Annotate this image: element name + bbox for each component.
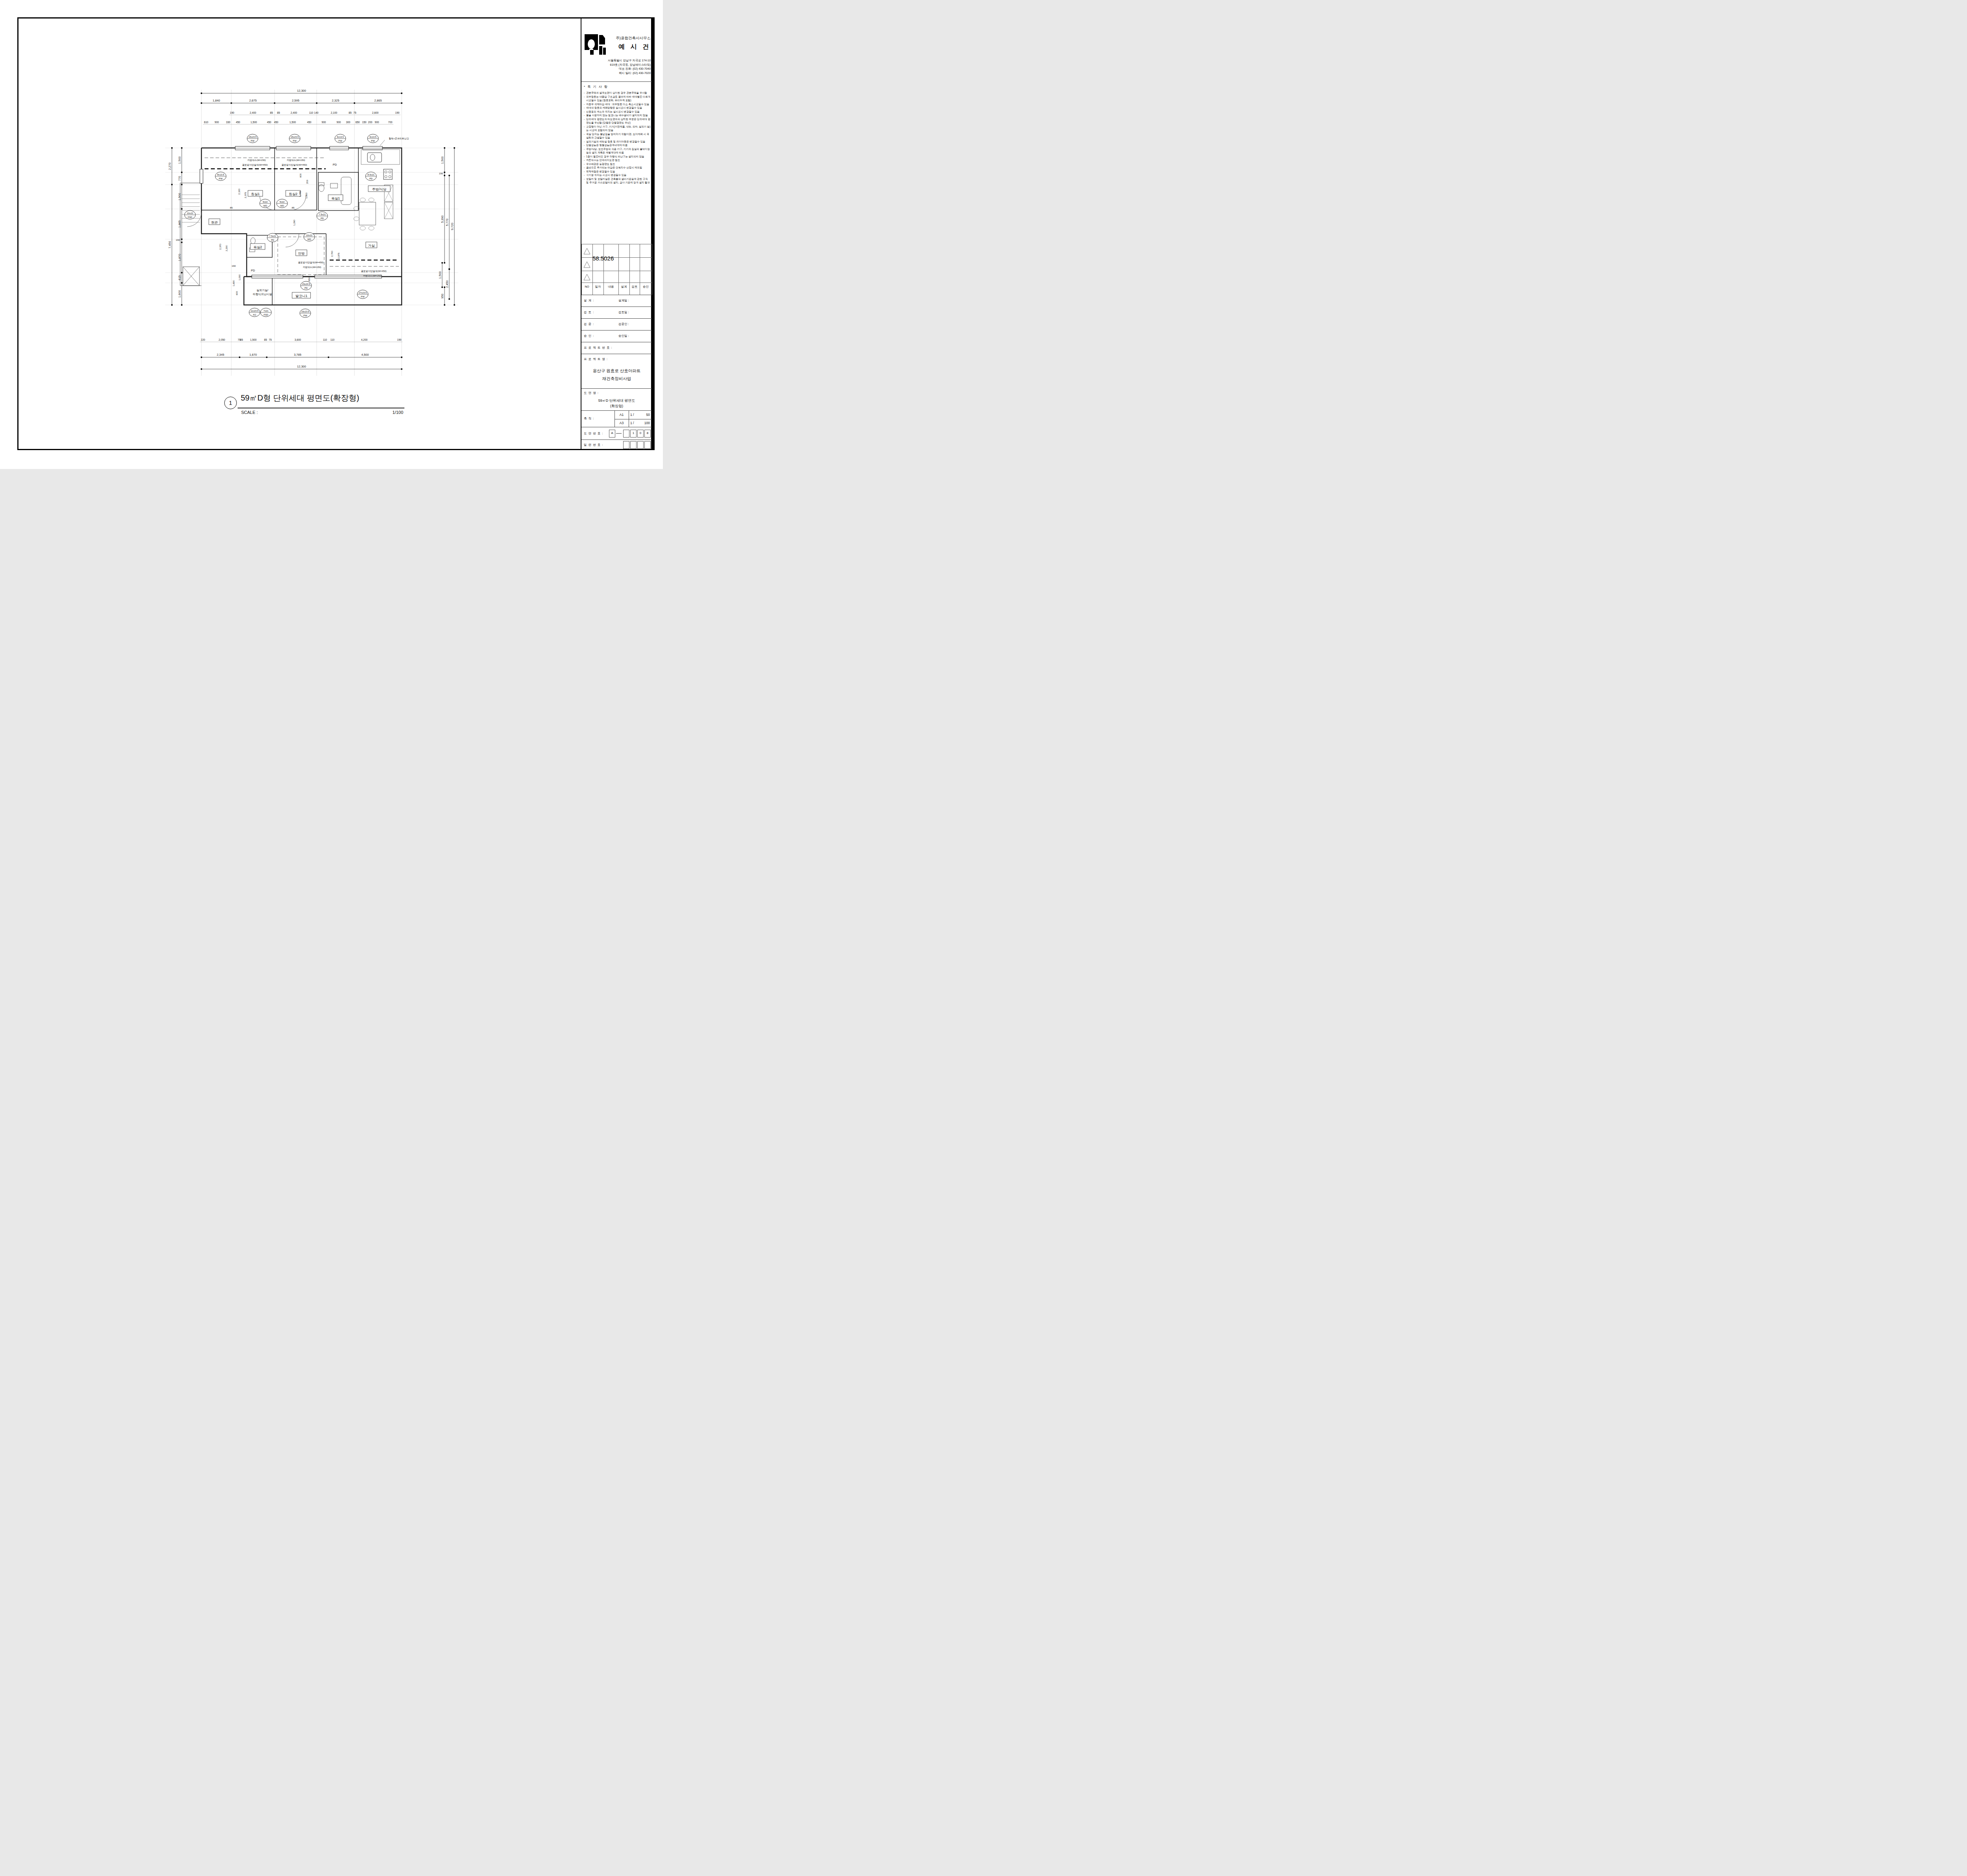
dining-chair — [360, 226, 365, 230]
drawing-name-label: 도 면 명 : — [584, 391, 599, 395]
toilet-icon — [319, 183, 324, 186]
dining-chair — [369, 226, 374, 230]
revision-table: 58.5026NO일자내용설계검토승인 — [581, 244, 652, 295]
sign-right-label: 검증인 : — [618, 322, 629, 326]
dim-tick — [201, 102, 202, 104]
dim-label: 110 — [330, 338, 335, 341]
dim-tick — [181, 172, 183, 173]
dim-label: 85 — [264, 338, 267, 341]
drawing-name-row: 도 면 명 : 59㎡D 단위세대 평면도 (확장형) — [581, 388, 652, 411]
window-tag-code: PD — [369, 177, 373, 180]
window-tag-code: PW — [219, 177, 223, 180]
annotation-text: 결로방지단열재(W=450) — [298, 261, 323, 264]
sign-row: 검 토 : 검토일 : — [581, 307, 652, 319]
annotation-text: 커텐박스(W=150) — [286, 159, 305, 161]
dim-label: 5,770 — [445, 219, 449, 226]
dim-tick — [181, 208, 183, 210]
dim-tick — [444, 262, 445, 264]
dim-tick — [401, 92, 402, 94]
dim-label: 615 — [178, 275, 181, 281]
dim-tick — [401, 368, 402, 370]
note-item: 커튼박스는 인테리어도면 참조 — [584, 158, 651, 162]
dim-tick — [181, 272, 183, 273]
dim-tick — [454, 304, 455, 306]
project-name-label: 프 로 젝 트 명 : — [584, 357, 608, 361]
revision-header: NO — [581, 285, 592, 288]
dim-label: 650 — [355, 121, 360, 124]
dim-label: 610 — [204, 121, 208, 124]
title-block: 주)종합건축사사무소 예 시 건 서울특별시 강남구 자곡로 174-10619… — [581, 18, 651, 449]
revision-triangle — [583, 274, 590, 281]
dim-label: 950 — [441, 294, 444, 299]
window-tag-code: PW — [338, 140, 342, 142]
dim-tick — [444, 175, 445, 176]
dim-label: 190 — [397, 338, 401, 341]
dim-label-interior: 85 — [292, 206, 295, 209]
dining-chair — [360, 198, 365, 202]
room-label: 욕실1 — [331, 196, 340, 200]
window-tag-size: 15x23.5 — [301, 310, 310, 313]
dim-label: 1,500 — [438, 271, 442, 279]
special-notes-title: * 특 기 사 항 — [584, 85, 651, 89]
dim-label: 7,450 — [168, 241, 172, 249]
sign-right-label: 승인일 : — [618, 334, 629, 338]
sign-right-label: 설계일 : — [618, 299, 629, 303]
dim-tick — [266, 356, 268, 358]
dim-label: 2,600 — [372, 111, 379, 114]
address-line: 619호 (자곡동, 강남에이스타워) — [585, 63, 651, 67]
window-tag-size: 15x23.5 — [291, 136, 299, 138]
note-item: 단열성능은 형별성능관계내역에 따름 — [584, 143, 651, 147]
window-tag-code: PW — [371, 140, 375, 142]
dim-label-interior: 2,975 — [337, 253, 340, 259]
dim-label: 900 — [214, 121, 219, 124]
dim-tick — [448, 175, 450, 176]
dim-label: 200 — [368, 121, 372, 124]
dim-label-interior: 1,500 — [305, 192, 308, 199]
sign-left-label: 검 토 : — [584, 310, 594, 314]
room-label: 실외기실/ — [256, 289, 268, 292]
stove-icon — [384, 169, 392, 179]
serial-no-digit-box — [637, 441, 644, 449]
window — [200, 169, 203, 183]
dim-label: 85 — [270, 111, 273, 114]
window-tag-size: 7x21 — [264, 310, 269, 312]
dim-tick — [171, 184, 173, 185]
scale-sheet-a1: A1 — [615, 413, 628, 417]
window-tag-code: FSD — [264, 314, 268, 316]
revision-header: 승인 — [640, 285, 652, 289]
drawing-number-bubble: 1 — [224, 397, 237, 409]
kitchen-sink-icon — [367, 153, 382, 162]
dim-label: 12,300 — [297, 365, 306, 368]
note-item: 국기봉 위치는 시공시 변경될수 있음 — [584, 173, 651, 177]
window-tag-size: 15x23.5 — [249, 136, 257, 138]
scale-row-label: 축 척 : — [584, 417, 594, 421]
dim-label-interior: 1,260 — [293, 220, 295, 226]
dim-label: 3,785 — [294, 353, 301, 356]
serial-no-digit-box — [630, 441, 637, 449]
dim-tick — [328, 356, 329, 358]
dim-tick — [444, 286, 445, 288]
dim-tick — [171, 147, 173, 149]
dim-label-interior: 200 — [306, 179, 308, 184]
dining-table — [359, 202, 376, 225]
dim-label: 1,500 — [251, 121, 257, 124]
stove-burner — [389, 175, 391, 178]
window-tag-size: 8.5x21 — [367, 174, 374, 176]
annotation-text: 커텐박스(W=150) — [363, 275, 381, 277]
dim-label: 110 — [323, 338, 327, 341]
dim-label: 5,390 — [441, 216, 444, 223]
dim-label-interior: 1,785 — [299, 191, 301, 197]
room-label: 거실 — [368, 244, 375, 247]
dim-label-interior: 2,200 — [225, 245, 228, 251]
dim-label-interior: 600 — [235, 291, 238, 295]
window-tag-code: PW — [361, 295, 365, 298]
note-item: 욕실 단차는 물넘침을 방지하기 위함이면, 도어개폐 시 욕실화와 간설될수 … — [584, 132, 651, 140]
scale-label: SCALE : — [241, 410, 258, 415]
dim-label: 1,500 — [441, 157, 444, 164]
core-outline — [180, 183, 201, 286]
dim-label: 190 — [395, 111, 399, 114]
note-item: 주방/식당, 보조주방의 각종 가구, 기기와 침실의 붙박이장 등의 설치 계… — [584, 147, 651, 155]
project-name-line2: 재건축정비사업 — [581, 376, 652, 382]
sign-left-label: 설 계 : — [584, 299, 594, 303]
dim-label: 85 — [349, 111, 352, 114]
sign-row: 검 증 : 검증인 : — [581, 318, 652, 331]
dim-label: 4,200 — [361, 338, 368, 341]
dim-tick — [181, 242, 183, 243]
dim-tick — [181, 282, 183, 284]
dim-tick — [171, 304, 173, 306]
room-label: 침실2 — [289, 192, 297, 196]
dim-tick — [181, 147, 183, 149]
stove-burner — [385, 175, 387, 178]
company-name-small: 주)종합건축사사무소 — [607, 36, 651, 41]
dim-label: 1,865 — [178, 220, 181, 228]
address-line: 팩시 밀리: (02) 430-7020 — [585, 71, 651, 76]
dim-label-interior: 2,100 — [238, 188, 240, 195]
dim-label: 450 — [267, 121, 271, 124]
dim-label: 220 — [201, 338, 205, 341]
dim-label: 85 — [277, 111, 280, 114]
address-line: 대표 전화: (02) 430-7040 — [585, 67, 651, 71]
stove-burner — [385, 171, 387, 173]
room-label: 욕실2 — [253, 245, 262, 249]
drawing-no-dash — [616, 433, 622, 434]
note-item: 세대내 창호의 개폐방향은 실시공시 변경될수 있음 — [584, 106, 651, 110]
note-item: 1층이 필로티인 경우 하향식 피난구는 설치되지 않음 — [584, 155, 651, 159]
dim-tick — [181, 184, 183, 185]
window-tag-size: 10x22 — [306, 234, 312, 236]
address-line: 서울특별시 강남구 자곡로 174-10 — [585, 59, 651, 63]
drawing-no-label: 도 면 번 호 : — [584, 432, 603, 436]
window-tag-code: PW — [303, 314, 307, 317]
drawing-name-line2: (확장형) — [581, 404, 652, 409]
note-item: 물을 사용하지 않는 발코니는 배수설비가 설치되지 않음 — [584, 113, 651, 117]
pd-label: PD — [333, 163, 337, 166]
annotation-text: 커텐박스(W=150) — [303, 266, 321, 268]
serial-no-row: 일 련 번 호 : — [581, 439, 652, 449]
sign-left-label: 승 인 : — [584, 334, 594, 338]
window-tag-size: 9x13.5 — [369, 136, 376, 138]
dim-tick — [181, 304, 183, 306]
dim-label: 2,270 — [168, 162, 172, 170]
dim-label: 75 — [353, 111, 356, 114]
window-tag-code: AG — [253, 314, 256, 316]
annotation-text: 결로방지단열재(W=450) — [361, 270, 386, 272]
drawing-no-prefix-box: A — [609, 430, 615, 438]
note-item: 보일러 및 보일러실은 건축물의 설비기준등에 관한 규칙 및 주거용 가스보일… — [584, 177, 651, 185]
dim-label: 2,450 — [445, 281, 449, 288]
dim-label: 2,345 — [217, 353, 224, 356]
dim-label-interior: 190 — [232, 264, 236, 267]
scale-value: 1/100 — [354, 410, 403, 415]
drawing-no-digit-box: 1 — [630, 430, 637, 438]
revision-header: 검토 — [629, 285, 640, 289]
dim-label-interior: 85 — [230, 206, 233, 209]
dim-tick — [444, 147, 445, 149]
pd-label: PD — [251, 269, 255, 272]
room-label: 침실1 — [251, 192, 260, 196]
divider — [581, 81, 652, 82]
dim-label-interior: 1,000 — [238, 274, 241, 281]
dim-label: 190 — [230, 111, 234, 114]
drawing-no-digit-box: 0 — [637, 430, 644, 438]
project-no-row: 프 로 젝 트 번 호 : — [581, 342, 652, 354]
dim-label: 1,600 — [178, 290, 181, 298]
revision-header: 일자 — [592, 285, 603, 289]
dim-label-interior: 2,375 — [244, 192, 247, 198]
door-arc — [286, 234, 299, 247]
wall-outer — [201, 148, 402, 277]
dim-label: 2,400 — [250, 111, 256, 114]
dim-label-interior: 650 — [308, 277, 310, 281]
annotation-text: 철제+콘크리트난간 — [389, 137, 409, 140]
dim-label: 1,500 — [178, 193, 181, 201]
note-item: 견본주택과 설계도면이 상이한 경우 견본주택을 우서함 — [584, 91, 651, 95]
dim-label: 2,595 — [292, 99, 299, 102]
dim-label: 2,325 — [332, 99, 340, 102]
dim-label: 12,300 — [297, 89, 306, 92]
special-notes: * 특 기 사 항 견본주택과 설계도면이 상이한 경우 견본주택을 우서함외부… — [584, 85, 651, 185]
window-tag-code: PW — [251, 140, 255, 142]
dim-tick — [201, 356, 202, 358]
dim-label: 1,670 — [249, 353, 257, 356]
window-tag-code: WD — [263, 205, 267, 207]
kitchen-sink-icon — [370, 154, 375, 161]
company-logo — [585, 34, 606, 55]
dim-label: 330 — [226, 121, 230, 124]
dim-label-interior: 1,600 — [232, 280, 235, 286]
serial-no-digit-box — [623, 441, 629, 449]
dim-label: 2,100 — [331, 111, 338, 114]
company-address: 서울특별시 강남구 자곡로 174-10619호 (자곡동, 강남에이스타워)대… — [585, 59, 651, 75]
dim-tick — [354, 102, 355, 104]
drawing-title: 59㎡D형 단위세대 평면도(확장형) — [241, 393, 359, 403]
dim-label: 9,720 — [450, 223, 454, 230]
dim-tick — [316, 102, 317, 104]
dim-label: 2,675 — [249, 99, 257, 102]
window-tag-code: PD — [321, 217, 324, 220]
scale-sheet-a3: A3 — [615, 421, 628, 425]
dim-label: 75 — [269, 338, 272, 341]
sign-left-label: 검 증 : — [584, 322, 594, 326]
builtin-cabinet-x — [384, 202, 393, 219]
dim-label: 190 — [439, 172, 443, 175]
sink-icon — [330, 183, 338, 188]
drawing-sheet: 침실1침실2욕실1주방/식당현관욕실2안방거실발코니1실외기실/하향식피난시설P… — [0, 0, 663, 469]
dim-label: 85 — [240, 338, 243, 341]
dim-tick — [239, 356, 240, 358]
note-item: 우수배관은 동평면도 참조 — [584, 162, 651, 166]
annotation-leader — [380, 140, 385, 146]
stove-burner — [389, 171, 391, 173]
window-tag-size: 7.5x21 — [319, 213, 325, 216]
window-tag-code: WD — [307, 238, 311, 240]
scale-value-a1: 50 — [637, 413, 650, 417]
dim-label: 900 — [375, 121, 379, 124]
dim-label-interior: 2,370 — [219, 244, 221, 250]
dim-label: 1,500 — [290, 121, 296, 124]
room-label: 현관 — [211, 220, 218, 224]
note-item: 고정형이 아닌 가구, 기기(가전제품, 식탁, 의자, 실외기 등)는 시공에… — [584, 125, 651, 132]
sign-right-label: 검토일 : — [618, 310, 629, 314]
revision-number: 58.5026 — [592, 255, 614, 262]
dim-label: 110 — [309, 111, 314, 114]
dim-label: 450 — [274, 121, 278, 124]
dim-label: 1,500 — [178, 157, 181, 164]
window-tag-size: 7.5x21 — [269, 235, 276, 237]
revision-header: 설계 — [618, 285, 629, 289]
serial-no-label: 일 련 번 호 : — [584, 443, 603, 447]
dim-tick — [441, 286, 443, 288]
window-tag-code: PD — [304, 287, 308, 289]
company-name-large: 예 시 건 — [607, 43, 651, 51]
dim-label: 3,600 — [295, 338, 301, 341]
dim-label: 2,050 — [219, 338, 225, 341]
scale-value-a3: 100 — [637, 421, 650, 425]
window-tag-code: PD — [271, 239, 274, 241]
wall-bath1 — [318, 172, 358, 210]
window-tag-size: 10x22 — [187, 212, 193, 214]
room-label: 하향식피난시설 — [253, 293, 272, 296]
dim-label-interior: 600 — [299, 173, 302, 177]
dim-tick — [181, 238, 183, 240]
dim-tick — [401, 356, 402, 358]
revision-triangle — [583, 248, 590, 255]
dim-label: 700 — [388, 121, 392, 124]
dim-label: 190 — [176, 238, 180, 241]
room-label: 안방 — [298, 251, 305, 255]
revision-header: 내용 — [603, 285, 618, 289]
dim-label: 1,870 — [178, 254, 181, 261]
window-tag-code: WD — [280, 205, 284, 207]
dim-label: 1,500 — [250, 338, 257, 341]
window-tag-size: 11x23.5 — [251, 310, 258, 312]
sign-row: 승 인 : 승인일 : — [581, 330, 652, 342]
dim-tick — [448, 298, 450, 300]
note-item: 외부창호는 내풍압 구조검토 결과에 따라 세대별로 다르게 시공될수 있음 (… — [584, 95, 651, 102]
dim-label: 4,500 — [362, 353, 369, 356]
dim-tick — [454, 147, 455, 149]
room-label: 주방/식당 — [372, 187, 387, 191]
note-item: 단위세대 평면도와 타도면과의 상히한 부분은 단위세대 평면도를 우선함 (단… — [584, 117, 651, 125]
dining-chair — [369, 198, 374, 202]
dim-tick — [201, 92, 202, 94]
dim-label: 770 — [178, 176, 181, 181]
scale-row: 축 척 : A1 1 / 50 A3 1 / 100 — [581, 410, 652, 427]
dim-label: 300 — [346, 121, 350, 124]
dim-tick — [444, 172, 445, 173]
dim-tick — [274, 102, 275, 104]
drawing-no-digit-box — [623, 430, 629, 438]
dim-label: 2,400 — [291, 111, 297, 114]
dim-tick — [448, 268, 450, 270]
drawing-name-line1: 59㎡D 단위세대 평면도 — [581, 398, 652, 403]
dim-label: 450 — [307, 121, 311, 124]
annotation-text: 커텐박스(W=150) — [247, 159, 266, 161]
window-tag-code: PW — [293, 140, 297, 142]
dim-tick — [444, 304, 445, 306]
dim-label: 1,840 — [213, 99, 220, 102]
dim-label: 450 — [236, 121, 240, 124]
window-tag-code: FSD — [188, 216, 192, 218]
dim-label: 900 — [321, 121, 326, 124]
note-item: 선홈통의 개소와 위치는 실시공시 변경될수 있음 — [584, 110, 651, 114]
window-tag-size: 9x22 — [280, 201, 285, 203]
scale-ratio-a3: 1 / — [630, 421, 634, 425]
note-item: 실외기실과 세탁실 창호 및 레이아웃은 변경될수 있음 — [584, 140, 651, 144]
note-item: 저층부 석재마감 세대 : 외부창호 다소 축소시공될수 있음 — [584, 102, 651, 106]
scale-ratio-a1: 1 / — [630, 413, 634, 417]
wall-partition — [275, 148, 358, 210]
dim-label: 2,865 — [375, 99, 382, 102]
title-underline — [238, 408, 404, 408]
dim-tick — [401, 102, 402, 104]
annotation-text: 결로방지단열재(W=450) — [281, 164, 307, 166]
toilet-icon — [251, 238, 255, 244]
drawing-no-digit-box: 8 — [644, 430, 651, 438]
room-label: 발코니1 — [295, 294, 308, 298]
project-name-row: 프 로 젝 트 명 : 용산구 원효로 산호아파트 재건축정비사업 — [581, 354, 652, 389]
revision-triangle — [583, 261, 590, 268]
project-name-line1: 용산구 원효로 산호아파트 — [581, 368, 652, 374]
dim-tick — [231, 102, 232, 104]
window-tag-size: 27x23.5 — [359, 292, 367, 294]
drawing-no-row: 도 면 번 호 : A 108 — [581, 427, 652, 440]
dim-label: 150 — [362, 121, 366, 124]
dim-label: 900 — [336, 121, 341, 124]
special-notes-list: 견본주택과 설계도면이 상이한 경우 견본주택을 우서함외부창호는 내풍압 구조… — [584, 91, 651, 185]
note-item: 옵션으로 추가되는 마감은 안목치수 산정시 제외됨 — [584, 166, 651, 170]
window-tag-size: 9x22 — [263, 201, 268, 203]
dim-label: 140 — [314, 111, 318, 114]
window-tag-size: 15x24.5 — [302, 283, 310, 285]
dim-tick — [201, 368, 202, 370]
dim-label-interior: 2,700 — [330, 251, 333, 257]
window-tag-size: 8x13.5 — [217, 174, 224, 176]
project-no-label: 프 로 젝 트 번 호 : — [584, 346, 613, 350]
sign-row: 설 계 : 설계일 : — [581, 295, 652, 307]
note-item: 벽체재질은 변경될수 있음 — [584, 170, 651, 174]
dim-tick — [441, 262, 443, 264]
serial-no-digit-box — [644, 441, 651, 449]
annotation-text: 결로방지단열재(W=450) — [242, 164, 268, 166]
window-tag-size: 9x13.5 — [337, 136, 343, 138]
